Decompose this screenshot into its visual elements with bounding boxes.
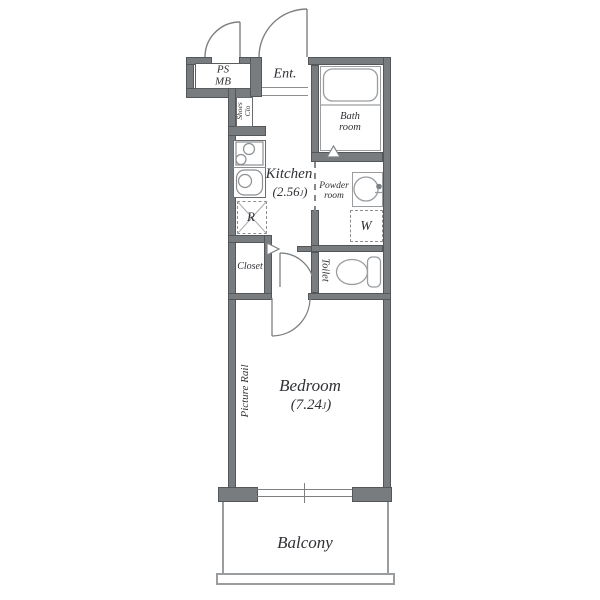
entrance-door: [259, 9, 307, 57]
washer-label: W: [360, 219, 371, 233]
stove-burners: [236, 142, 263, 165]
powder-basin: [354, 177, 382, 201]
closet-label: Closet: [237, 262, 263, 273]
bedroom-label: Bedroom: [279, 377, 341, 395]
ps-mb-label: PSMB: [215, 64, 231, 87]
bathtub: [320, 69, 381, 105]
shoes-closet-label: ShoesClo: [236, 102, 252, 120]
floor-plan: PSMB Ent. ShoesClo Bathroom Kitchen (2.5…: [0, 0, 600, 600]
hall-door: [280, 253, 314, 287]
bedroom-door: [272, 298, 310, 336]
kitchen-size-label: (2.56J): [272, 185, 307, 199]
bath-door-mark: [327, 146, 340, 157]
closet-door-mark: [267, 243, 279, 255]
toilet-label: Toilet: [319, 258, 330, 282]
refrigerator-label: R: [247, 210, 255, 224]
kitchen-label: Kitchen: [266, 167, 313, 183]
powder-room-label: Powderroom: [319, 182, 349, 202]
picture-rail-label: Picture Rail: [240, 364, 252, 417]
kitchen-sink: [237, 170, 263, 195]
bedroom-size-label: (7.24J): [291, 398, 331, 414]
bathroom-label: Bathroom: [339, 111, 361, 133]
toilet-fixture: [337, 257, 381, 287]
fixtures-layer: [0, 0, 600, 600]
entrance-label: Ent.: [274, 68, 297, 83]
ps-mb-door: [205, 22, 240, 57]
balcony-label: Balcony: [277, 534, 333, 552]
